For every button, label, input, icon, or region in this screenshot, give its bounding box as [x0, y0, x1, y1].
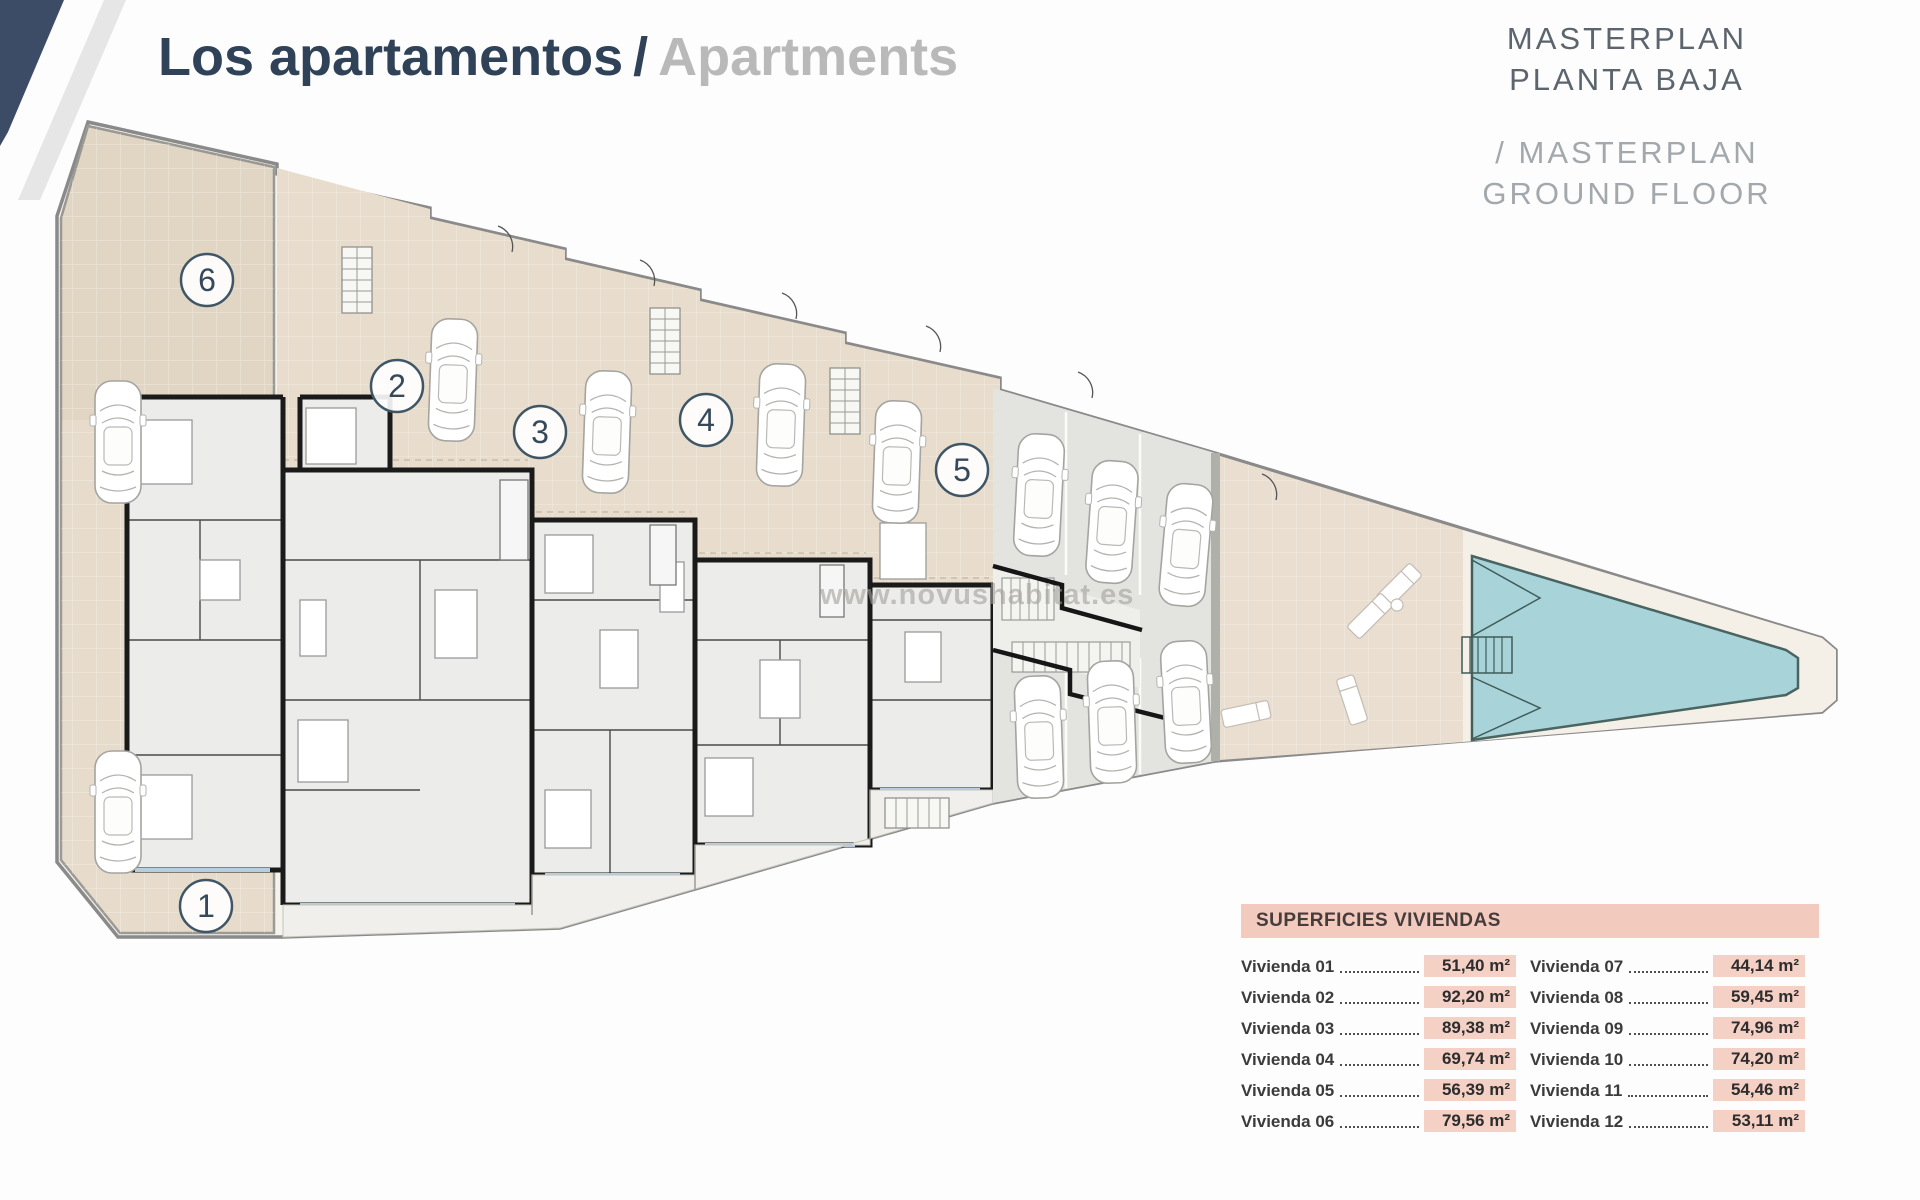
unit-marker-2: 2 — [371, 360, 423, 412]
svg-text:5: 5 — [953, 452, 971, 488]
dotted-leader — [1629, 1064, 1708, 1066]
unit-label: Vivienda 08 — [1530, 988, 1623, 1008]
unit-marker-1: 1 — [180, 880, 232, 932]
unit-label: Vivienda 05 — [1241, 1081, 1334, 1101]
table-row: Vivienda 10 74,20 m² — [1530, 1048, 1805, 1070]
unit-label: Vivienda 03 — [1241, 1019, 1334, 1039]
table-row: Vivienda 01 51,40 m² — [1241, 955, 1516, 977]
unit-area-value: 51,40 m² — [1424, 955, 1516, 977]
table-row: Vivienda 12 53,11 m² — [1530, 1110, 1805, 1132]
unit-area-value: 53,11 m² — [1713, 1110, 1805, 1132]
car — [90, 751, 146, 873]
svg-text:4: 4 — [697, 402, 715, 438]
car — [423, 318, 483, 442]
areas-table-columns: Vivienda 01 51,40 m² Vivienda 02 92,20 m… — [1241, 955, 1819, 1141]
table-row: Vivienda 09 74,96 m² — [1530, 1017, 1805, 1039]
car — [867, 400, 927, 524]
car — [90, 381, 146, 503]
unit-area-value: 74,96 m² — [1713, 1017, 1805, 1039]
unit-area-value: 89,38 m² — [1424, 1017, 1516, 1039]
unit-area-value: 69,74 m² — [1424, 1048, 1516, 1070]
unit-marker-5: 5 — [936, 444, 988, 496]
svg-text:3: 3 — [531, 414, 549, 450]
dotted-leader — [1629, 1126, 1708, 1128]
unit-area-value: 74,20 m² — [1713, 1048, 1805, 1070]
pool — [1462, 530, 1836, 742]
unit-label: Vivienda 02 — [1241, 988, 1334, 1008]
unit-area-value: 79,56 m² — [1424, 1110, 1516, 1132]
areas-table-title: SUPERFICIES VIVIENDAS — [1241, 904, 1819, 938]
dotted-leader — [1340, 971, 1419, 973]
table-row: Vivienda 08 59,45 m² — [1530, 986, 1805, 1008]
unit-area-value: 44,14 m² — [1713, 955, 1805, 977]
svg-text:2: 2 — [388, 368, 406, 404]
unit-label: Vivienda 01 — [1241, 957, 1334, 977]
table-row: Vivienda 03 89,38 m² — [1241, 1017, 1516, 1039]
dotted-leader — [1340, 1033, 1419, 1035]
unit-label: Vivienda 10 — [1530, 1050, 1623, 1070]
car — [751, 363, 811, 487]
unit-label: Vivienda 11 — [1530, 1081, 1622, 1101]
unit-label: Vivienda 04 — [1241, 1050, 1334, 1070]
areas-table: SUPERFICIES VIVIENDAS Vivienda 01 51,40 … — [1241, 904, 1819, 1141]
car — [1009, 675, 1069, 799]
unit-area-value: 54,46 m² — [1713, 1079, 1805, 1101]
unit-area-value: 56,39 m² — [1424, 1079, 1516, 1101]
dotted-leader — [1629, 1002, 1708, 1004]
stairs-bottom — [885, 798, 949, 828]
areas-table-col-2: Vivienda 07 44,14 m² Vivienda 08 59,45 m… — [1530, 955, 1805, 1141]
unit-label: Vivienda 12 — [1530, 1112, 1623, 1132]
table-row: Vivienda 04 69,74 m² — [1241, 1048, 1516, 1070]
dotted-leader — [1340, 1064, 1419, 1066]
dotted-leader — [1628, 1095, 1708, 1097]
svg-text:1: 1 — [197, 888, 215, 924]
table-row: Vivienda 05 56,39 m² — [1241, 1079, 1516, 1101]
page: Los apartamentos/Apartments MASTERPLAN P… — [0, 0, 1920, 1200]
unit-marker-6: 6 — [181, 254, 233, 306]
terrace-pool-deck — [1220, 456, 1463, 760]
unit-area-value: 59,45 m² — [1713, 986, 1805, 1008]
unit-label: Vivienda 09 — [1530, 1019, 1623, 1039]
areas-table-col-1: Vivienda 01 51,40 m² Vivienda 02 92,20 m… — [1241, 955, 1516, 1141]
dotted-leader — [1340, 1095, 1419, 1097]
svg-text:6: 6 — [198, 262, 216, 298]
unit-area-value: 92,20 m² — [1424, 986, 1516, 1008]
table-row: Vivienda 11 54,46 m² — [1530, 1079, 1805, 1101]
unit-marker-3: 3 — [514, 406, 566, 458]
car — [577, 370, 637, 494]
table-row: Vivienda 06 79,56 m² — [1241, 1110, 1516, 1132]
unit-label: Vivienda 07 — [1530, 957, 1623, 977]
dotted-leader — [1340, 1126, 1419, 1128]
dotted-leader — [1629, 1033, 1708, 1035]
unit-marker-4: 4 — [680, 394, 732, 446]
car — [1082, 660, 1142, 784]
table-row: Vivienda 07 44,14 m² — [1530, 955, 1805, 977]
watermark: www.novushabitat.es — [819, 579, 1134, 611]
unit-label: Vivienda 06 — [1241, 1112, 1334, 1132]
dotted-leader — [1629, 971, 1708, 973]
table-row: Vivienda 02 92,20 m² — [1241, 986, 1516, 1008]
side-table — [1391, 599, 1403, 611]
dotted-leader — [1340, 1002, 1419, 1004]
